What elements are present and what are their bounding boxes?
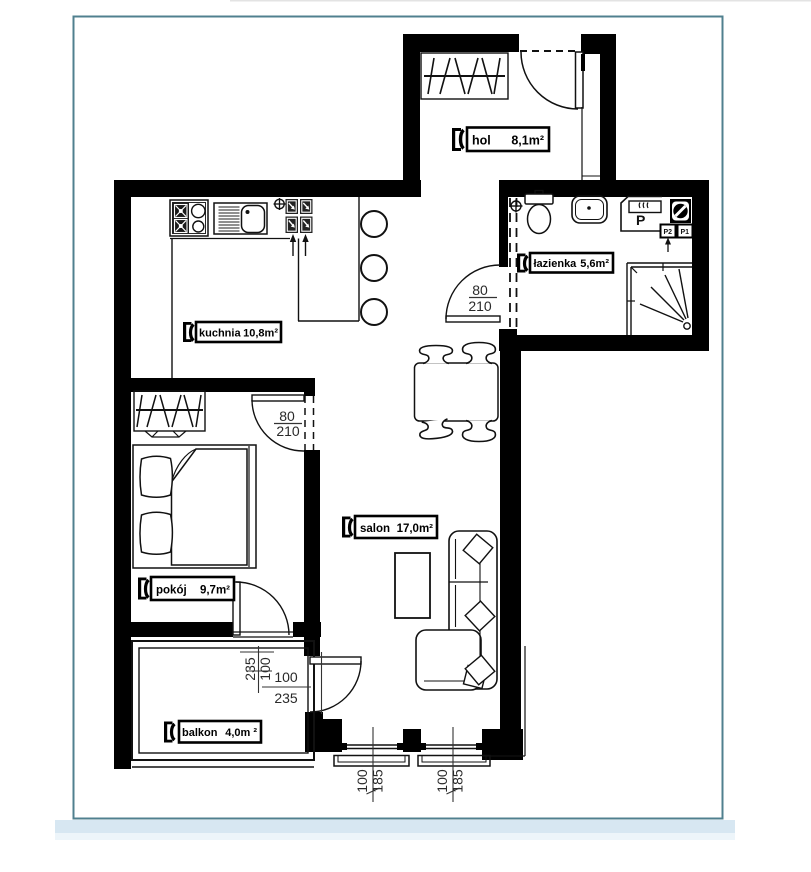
svg-text:100: 100 [257, 657, 273, 681]
svg-text:185: 185 [370, 769, 386, 793]
svg-text:17,0m²: 17,0m² [397, 523, 434, 535]
svg-text:salon: salon [360, 523, 390, 535]
svg-text:80: 80 [472, 282, 488, 298]
svg-text:100: 100 [434, 769, 450, 793]
svg-text:100: 100 [274, 669, 298, 685]
svg-text:4,0m ²: 4,0m ² [225, 727, 257, 739]
svg-text:235: 235 [242, 657, 258, 681]
svg-text:P: P [636, 212, 645, 228]
svg-text:kuchnia: kuchnia [199, 328, 241, 340]
svg-text:185: 185 [450, 769, 466, 793]
svg-text:8,1m²: 8,1m² [511, 134, 544, 148]
svg-text:10,8m²: 10,8m² [243, 328, 278, 340]
svg-text:210: 210 [468, 298, 492, 314]
svg-text:balkon: balkon [182, 727, 218, 739]
svg-text:9,7m²: 9,7m² [200, 585, 230, 597]
svg-text:100: 100 [354, 769, 370, 793]
svg-text:5,6m²: 5,6m² [580, 258, 609, 270]
svg-text:80: 80 [279, 408, 295, 424]
svg-text:210: 210 [276, 423, 300, 439]
svg-text:hol: hol [472, 134, 491, 148]
svg-text:łazienka: łazienka [534, 258, 578, 270]
svg-text:P2: P2 [664, 229, 673, 236]
svg-text:235: 235 [274, 690, 298, 706]
svg-text:pokój: pokój [156, 585, 187, 597]
svg-text:P1: P1 [681, 229, 690, 236]
